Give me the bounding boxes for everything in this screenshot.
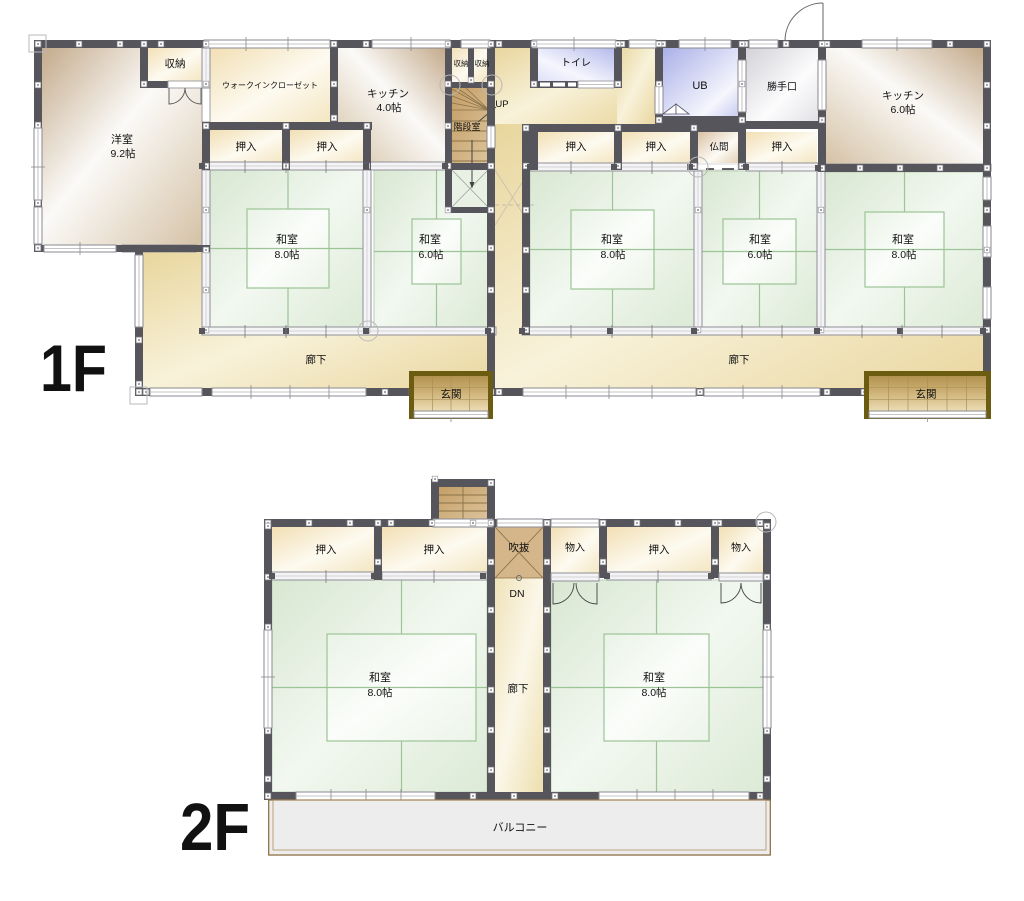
- svg-text:トイレ: トイレ: [561, 58, 591, 69]
- svg-text:8.0帖: 8.0帖: [274, 248, 300, 261]
- svg-text:収納: 収納: [475, 58, 490, 68]
- svg-text:和室: 和室: [419, 232, 441, 246]
- svg-text:6.0帖: 6.0帖: [747, 248, 773, 261]
- svg-text:キッチン: キッチン: [882, 90, 924, 102]
- svg-text:キッチン: キッチン: [367, 88, 409, 100]
- svg-text:廊下: 廊下: [508, 682, 529, 695]
- svg-text:玄関: 玄関: [441, 388, 462, 401]
- svg-text:収納: 収納: [165, 57, 186, 70]
- svg-text:8.0帖: 8.0帖: [891, 248, 917, 261]
- svg-text:押入: 押入: [317, 140, 338, 153]
- svg-text:吹抜: 吹抜: [509, 541, 530, 554]
- svg-text:和室: 和室: [749, 232, 771, 246]
- svg-text:押入: 押入: [236, 140, 257, 153]
- svg-text:和室: 和室: [643, 670, 665, 684]
- svg-text:9.2帖: 9.2帖: [110, 147, 136, 160]
- svg-text:収納: 収納: [454, 58, 469, 68]
- svg-text:和室: 和室: [892, 232, 914, 246]
- svg-text:玄関: 玄関: [916, 388, 937, 401]
- svg-text:押入: 押入: [566, 140, 587, 153]
- svg-text:1F: 1F: [40, 331, 107, 405]
- svg-text:和室: 和室: [276, 232, 298, 246]
- svg-text:廊下: 廊下: [306, 353, 327, 366]
- svg-text:UP: UP: [495, 99, 508, 110]
- svg-text:8.0帖: 8.0帖: [600, 248, 626, 261]
- svg-text:押入: 押入: [424, 543, 445, 556]
- svg-text:DN: DN: [509, 588, 524, 600]
- svg-text:和室: 和室: [369, 670, 391, 684]
- svg-text:ウォークインクローゼット: ウォークインクローゼット: [222, 80, 318, 90]
- svg-text:バルコニー: バルコニー: [493, 821, 548, 834]
- svg-text:廊下: 廊下: [729, 353, 750, 366]
- svg-text:押入: 押入: [649, 543, 670, 556]
- svg-text:8.0帖: 8.0帖: [641, 686, 667, 699]
- svg-text:2F: 2F: [180, 790, 250, 865]
- svg-text:6.0帖: 6.0帖: [418, 248, 444, 261]
- svg-text:押入: 押入: [772, 140, 793, 153]
- svg-text:階段室: 階段室: [453, 121, 480, 132]
- svg-text:8.0帖: 8.0帖: [367, 686, 393, 699]
- svg-text:押入: 押入: [316, 543, 337, 556]
- svg-text:物入: 物入: [731, 541, 751, 554]
- svg-text:物入: 物入: [565, 541, 585, 554]
- svg-text:和室: 和室: [601, 232, 623, 246]
- svg-text:4.0帖: 4.0帖: [376, 101, 402, 114]
- svg-text:押入: 押入: [646, 140, 667, 153]
- svg-text:UB: UB: [692, 80, 707, 92]
- svg-text:洋室: 洋室: [111, 132, 133, 146]
- svg-text:勝手口: 勝手口: [767, 80, 797, 93]
- svg-text:仏間: 仏間: [709, 142, 728, 153]
- svg-text:6.0帖: 6.0帖: [890, 103, 916, 116]
